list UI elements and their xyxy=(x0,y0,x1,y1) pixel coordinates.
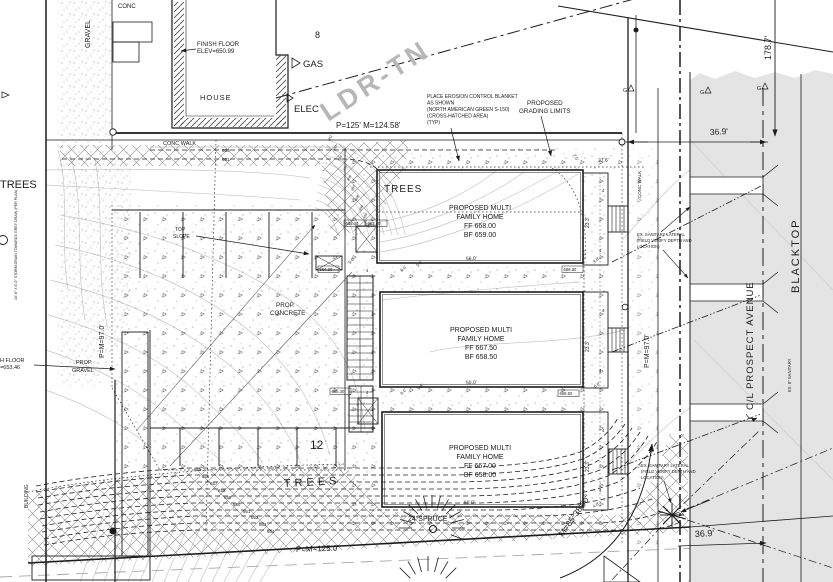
svg-text:ELEV=650.99: ELEV=650.99 xyxy=(197,49,235,55)
dim-depth: 23.3' xyxy=(585,217,591,228)
dim-depth: 23.3' xyxy=(585,341,591,352)
building-label: PROPOSED MULTI xyxy=(450,327,512,334)
contour-label: 656 xyxy=(202,474,210,479)
storm-drain-note: 10'-6" X 6'-0" STORM DRAIN TOWARDS GREY … xyxy=(14,190,18,300)
trees-left-label: TREES xyxy=(0,179,37,191)
spot-elevation: 665.40 xyxy=(346,221,359,226)
dim-north: P=125' M=124.58' xyxy=(336,121,401,130)
contour-label: 661 xyxy=(243,509,251,514)
prop-gravel-label: PROP. xyxy=(76,360,93,366)
spot-elevation: 664.30 xyxy=(320,267,333,272)
contour-label: 657 xyxy=(210,481,218,486)
svg-text:(FIELD VERIFY DEPTH AND: (FIELD VERIFY DEPTH AND xyxy=(637,238,692,243)
spot-elevation: 668.30 xyxy=(564,267,577,272)
neighbor-structure xyxy=(604,556,640,582)
zoning-label: LDR-TN xyxy=(315,34,436,127)
svg-text:SLOPE: SLOPE xyxy=(173,234,190,240)
conc-label: CONC xyxy=(118,4,136,10)
zoning-boundary xyxy=(276,0,652,98)
elec-label: ELEC xyxy=(294,104,319,115)
spot-elevation: 665.30 xyxy=(332,389,345,394)
contour-label: 652 xyxy=(327,135,333,142)
svg-text:FF 668.00: FF 668.00 xyxy=(464,223,496,230)
svg-text:G: G xyxy=(757,86,761,92)
building-label: PROPOSED MULTI xyxy=(449,205,511,212)
svg-text:(CROSS-HATCHED AREA): (CROSS-HATCHED AREA) xyxy=(427,114,489,120)
gas-marker-icon xyxy=(292,58,300,68)
svg-text:GRAVEL: GRAVEL xyxy=(72,368,94,374)
svg-text:FF 667.00: FF 667.00 xyxy=(464,463,496,470)
dim-south: P=M=125.0' xyxy=(296,543,340,554)
utility-symbol: 8 xyxy=(315,30,320,40)
dim-width: 50.0' xyxy=(466,380,477,386)
dim-width: 50.0' xyxy=(464,500,475,506)
top-slope-label: TOP xyxy=(175,227,186,233)
contour-label: 658 xyxy=(218,488,226,493)
contour-label: 663 xyxy=(259,522,267,527)
east-stairs-1 xyxy=(608,206,628,232)
dim-west: P=M=97.0' xyxy=(99,324,106,358)
finish-floor-label: FINISH FLOOR xyxy=(197,42,240,48)
dim-width: 56.0' xyxy=(466,256,477,262)
svg-text:BF 659.00: BF 659.00 xyxy=(464,232,496,239)
conc-walk-label: CONC WALK xyxy=(163,141,196,147)
svg-text:FAMILY HOME: FAMILY HOME xyxy=(456,454,504,461)
contour-label: 664 xyxy=(267,529,275,534)
svg-text:FAMILY HOME: FAMILY HOME xyxy=(457,336,505,343)
svg-text:(FIELD VERIFY DEPTH AND: (FIELD VERIFY DEPTH AND xyxy=(641,469,696,474)
driveway-1 xyxy=(690,177,763,194)
house-stoop xyxy=(113,22,152,42)
prospect-avenue-road xyxy=(690,70,833,582)
contour-label: 651 xyxy=(222,157,230,162)
svg-text:LOCATION): LOCATION) xyxy=(637,244,660,249)
svg-text:LOCATION): LOCATION) xyxy=(641,475,664,480)
trees-mid-label: TREES xyxy=(384,184,422,195)
svg-text:BF 658.50: BF 658.50 xyxy=(465,354,497,361)
gravel-label: GRAVEL xyxy=(85,20,92,48)
site-plan-canvas: 650 651 655 656 657 658 659 660 661 662 … xyxy=(0,0,833,582)
spot-elevation: 663.40 xyxy=(368,221,381,226)
contour-label: 650 xyxy=(222,148,230,153)
spot-elevation: 668.50 xyxy=(560,391,573,396)
grading-limits-note: PROPOSED GRADING LIMITS xyxy=(519,100,570,156)
svg-text:AS SHOWN: AS SHOWN xyxy=(427,101,455,107)
stall-count-label: 12 xyxy=(310,438,324,452)
contour-label: 660 xyxy=(233,502,241,507)
dim-369-bottom: 36.9' xyxy=(695,528,715,539)
contour-label: 662 xyxy=(251,515,259,520)
svg-text:PLACE EROSION CONTROL BLANKET: PLACE EROSION CONTROL BLANKET xyxy=(427,94,518,100)
svg-text:(NORTH AMERICAN GREEN S-150): (NORTH AMERICAN GREEN S-150) xyxy=(427,107,510,113)
gas-label: GAS xyxy=(303,59,323,70)
house-label: HOUSE xyxy=(200,93,232,102)
contour-label: 659 xyxy=(224,495,232,500)
svg-text:EX. SANITARY LATERAL: EX. SANITARY LATERAL xyxy=(637,232,686,237)
svg-text:(TYP): (TYP) xyxy=(427,120,440,126)
building-label: PROPOSED MULTI xyxy=(449,445,511,452)
blacktop-label: BLACKTOP xyxy=(790,219,802,294)
svg-text:FF 667.50: FF 667.50 xyxy=(465,345,497,352)
finish-floor-left-label: FINISH FLOOR xyxy=(0,358,25,364)
svg-text:CONCRETE: CONCRETE xyxy=(270,310,305,317)
building-left-label: BUILDING xyxy=(24,484,30,508)
dim-276: 27.6' xyxy=(598,158,609,164)
svg-text:PROPOSED: PROPOSED xyxy=(527,100,563,107)
svg-text:G: G xyxy=(700,90,704,96)
contour-label: 655 xyxy=(194,467,202,472)
dim-depth: 23.3' xyxy=(585,461,591,472)
spruce-label: 24"SPRUCE xyxy=(408,516,448,523)
svg-text:GRADING LIMITS: GRADING LIMITS xyxy=(519,108,570,115)
dim-369-top: 36.9' xyxy=(710,126,729,137)
ex-sanitary-main-label: EX. 8" SANITARY xyxy=(787,358,792,392)
svg-text:FAMILY HOME: FAMILY HOME xyxy=(456,214,504,221)
svg-text:ELEV=653.46: ELEV=653.46 xyxy=(0,365,20,371)
svg-text:G: G xyxy=(623,88,627,94)
prop-concrete-area xyxy=(112,205,345,470)
dim-1787: 178.7' xyxy=(763,35,773,60)
existing-house: HOUSE FINISH FLOOR ELEV=650.99 CONC GRAV… xyxy=(85,0,323,147)
conc-walk-v-label: CONC WALK xyxy=(637,171,642,198)
svg-text:BF 658.00: BF 658.00 xyxy=(464,472,496,479)
prop-concrete-label: PROP. xyxy=(276,302,295,309)
